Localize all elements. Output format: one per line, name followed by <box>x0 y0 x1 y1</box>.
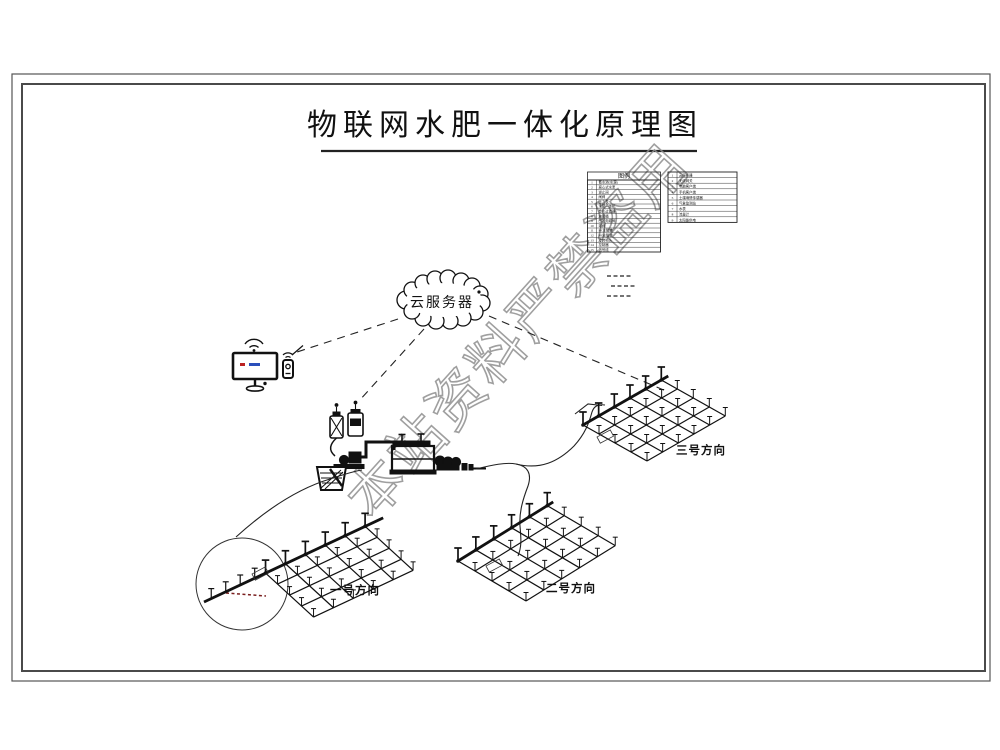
legend-row-label: 旋转喷头 <box>599 237 613 242</box>
screen-blue-element <box>249 363 260 366</box>
suction-pipe <box>331 438 337 456</box>
machine-manifold <box>396 441 430 446</box>
legend-row-label: 太阳能供电 <box>679 217 697 222</box>
legend-row-label: 电脑客户端 <box>679 184 697 189</box>
mobile-client <box>283 346 303 379</box>
field-lateral-pipe <box>599 389 677 434</box>
legend-row-label: 闸阀 <box>599 194 606 199</box>
barrel-b-band <box>351 419 361 426</box>
cloud-dot <box>477 290 480 293</box>
legend-row-number: 4 <box>672 190 674 194</box>
pump-volute <box>339 455 348 464</box>
field-lateral-pipe <box>615 398 693 443</box>
field-lateral-pipe <box>492 526 581 581</box>
legend-row-label: 施肥桶 <box>599 213 610 218</box>
monitor-dot <box>263 382 266 385</box>
legend-row-label: 水表 <box>679 206 686 211</box>
cloud-server-label: 云服务器 <box>410 295 474 311</box>
detail-dashed-line <box>226 593 266 596</box>
pc-monitor <box>233 339 277 391</box>
legend-row-number: 10 <box>590 224 594 228</box>
link-cloud-to-pc <box>297 319 398 352</box>
legend-row-number: 13 <box>590 238 594 242</box>
machine-base <box>390 470 436 474</box>
pump-motor <box>349 452 361 463</box>
legend-row-number: 8 <box>591 214 593 218</box>
field-main-pipe <box>583 376 668 425</box>
barrel-b-cap <box>351 410 360 414</box>
legend-table-secondary: 1云服务器2无线网关3电脑客户端4手机客户端5土壤墒情传感器6气象监测站7水表8… <box>668 172 737 222</box>
legend-row-label: 田间电磁阀 <box>599 218 617 223</box>
legend-row-number: 1 <box>591 181 593 185</box>
legend-linetype-symbols <box>607 276 635 296</box>
legend-row-label: 叠片过滤器 <box>599 209 617 214</box>
drawing-canvas: 物联网水肥一体化原理图 本站资料严禁盗用 图例1蓄水池(水源)2离心式水泵3逆止… <box>0 0 1000 750</box>
wifi-icon <box>245 339 263 352</box>
legend-row-label: 云服务器 <box>679 173 693 178</box>
legend-row-label: PE主管道 <box>599 228 614 233</box>
legend-row-label: 蓄水池(水源) <box>599 180 618 185</box>
legend-row-number: 6 <box>591 205 593 209</box>
legend-row-number: 5 <box>591 200 593 204</box>
legend-row-label: 离心式水泵 <box>599 185 617 190</box>
legend-header: 图例 <box>618 172 630 180</box>
legend-row-number: 4 <box>591 195 593 199</box>
barrel-b-antenna-dot <box>354 401 357 404</box>
legend-row-number: 11 <box>590 229 594 233</box>
legend-row-number: 9 <box>591 219 593 223</box>
legend-row-number: 14 <box>590 243 594 247</box>
legend-row-label: 压力表 <box>599 199 610 204</box>
legend-row-number: 7 <box>591 210 593 214</box>
field3-label: 三号方向 <box>676 443 726 457</box>
legend-row-label: 逆止阀 <box>599 189 610 194</box>
legend-row-number: 12 <box>590 234 594 238</box>
legend-row-label: 土壤墒情传感器 <box>679 195 703 200</box>
legend-row-label: 气象监测站 <box>679 201 697 206</box>
barrel-a-antenna-dot <box>335 404 338 407</box>
field1-label: 一号方向 <box>330 583 380 597</box>
legend-row-label: 无线网关 <box>679 178 693 183</box>
legend-row-label: 手机客户端 <box>679 189 697 194</box>
supply-curve-to-field3 <box>516 405 605 466</box>
link-cloud-to-controller <box>359 329 424 401</box>
screen-red-element <box>240 363 245 366</box>
barrel-a-cap <box>333 412 340 416</box>
field-1 <box>204 513 416 617</box>
schematic-svg: 物联网水肥一体化原理图 本站资料严禁盗用 图例1蓄水池(水源)2离心式水泵3逆止… <box>0 0 1000 750</box>
legend-row-number: 8 <box>672 213 674 217</box>
legend-row-number: 1 <box>672 174 674 178</box>
legend-row-label: 控制器 <box>599 242 610 247</box>
legend-row-number: 7 <box>672 207 674 211</box>
legend-row-label: 球阀 <box>599 223 606 228</box>
legend-row-number: 6 <box>672 202 674 206</box>
legend-row-number: 2 <box>591 186 593 190</box>
filter-cluster <box>435 456 473 470</box>
legend-row-number: 5 <box>672 196 674 200</box>
legend-row-label: 水肥一体机 <box>599 204 617 209</box>
legend-row-label: 信号线 <box>599 247 610 252</box>
field2-label: 二号方向 <box>546 581 596 595</box>
legend-row-label: PE支管道 <box>599 233 614 238</box>
legend-row-label: 流量计 <box>679 212 690 217</box>
page-title: 物联网水肥一体化原理图 <box>307 109 703 142</box>
legend-row-number: 15 <box>590 248 594 252</box>
legend-row-number: 2 <box>672 179 674 183</box>
legend-row-number: 9 <box>672 218 674 222</box>
legend-row-number: 3 <box>591 190 593 194</box>
monitor-base <box>247 386 264 391</box>
legend-row-number: 3 <box>672 185 674 189</box>
